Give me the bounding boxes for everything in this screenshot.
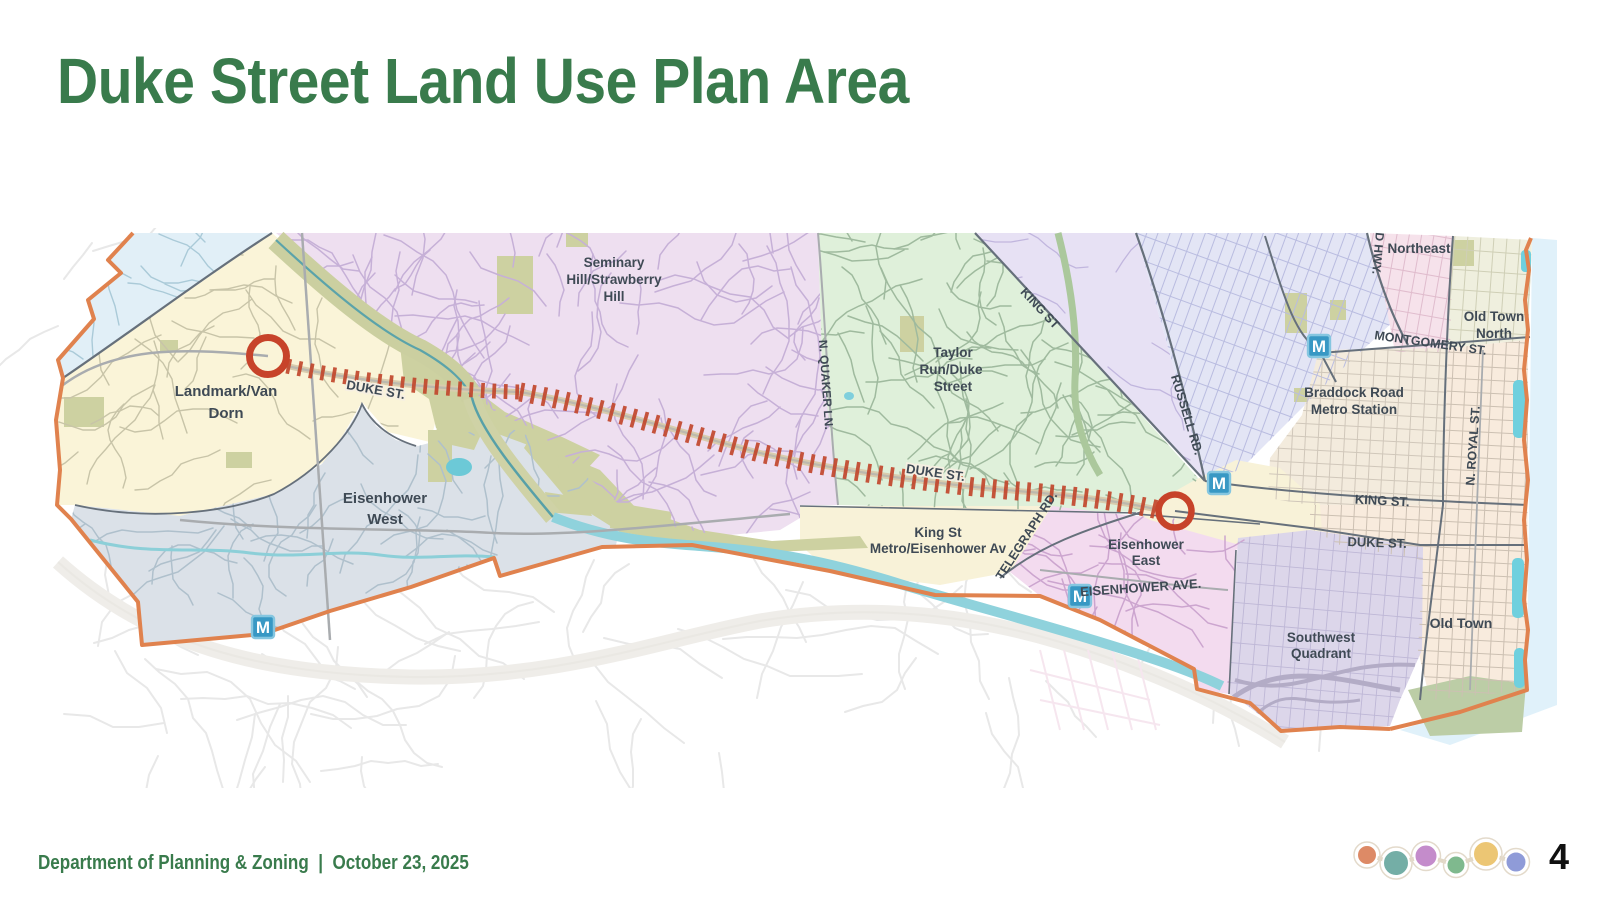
svg-text:Run/Duke: Run/Duke — [919, 362, 982, 377]
svg-text:DUKE ST.: DUKE ST. — [1347, 534, 1407, 551]
svg-text:Southwest: Southwest — [1287, 630, 1356, 645]
svg-text:Braddock Road: Braddock Road — [1304, 385, 1404, 400]
svg-text:Hill/Strawberry: Hill/Strawberry — [566, 272, 662, 287]
svg-text:East: East — [1132, 553, 1161, 568]
svg-text:Eisenhower: Eisenhower — [343, 490, 427, 507]
svg-text:King St: King St — [914, 525, 962, 540]
svg-text:KING ST.: KING ST. — [1354, 492, 1410, 510]
svg-text:M: M — [256, 618, 270, 637]
svg-text:Metro/Eisenhower Av: Metro/Eisenhower Av — [870, 541, 1007, 556]
svg-text:West: West — [367, 511, 403, 528]
svg-text:Hill: Hill — [603, 289, 624, 304]
svg-text:Dorn: Dorn — [209, 405, 244, 422]
svg-text:Seminary: Seminary — [584, 255, 645, 270]
svg-text:Northeast: Northeast — [1387, 241, 1451, 256]
svg-text:M: M — [1212, 474, 1226, 493]
svg-text:Eisenhower: Eisenhower — [1108, 537, 1185, 552]
svg-text:Old Town: Old Town — [1430, 615, 1493, 631]
svg-text:Old Town: Old Town — [1464, 309, 1525, 324]
svg-text:Street: Street — [934, 379, 973, 394]
svg-text:M: M — [1312, 337, 1326, 356]
svg-text:North: North — [1476, 326, 1512, 341]
svg-text:Quadrant: Quadrant — [1291, 646, 1352, 661]
svg-text:Landmark/Van: Landmark/Van — [175, 383, 278, 400]
svg-text:Metro Station: Metro Station — [1311, 402, 1397, 417]
svg-text:Taylor: Taylor — [933, 345, 973, 360]
